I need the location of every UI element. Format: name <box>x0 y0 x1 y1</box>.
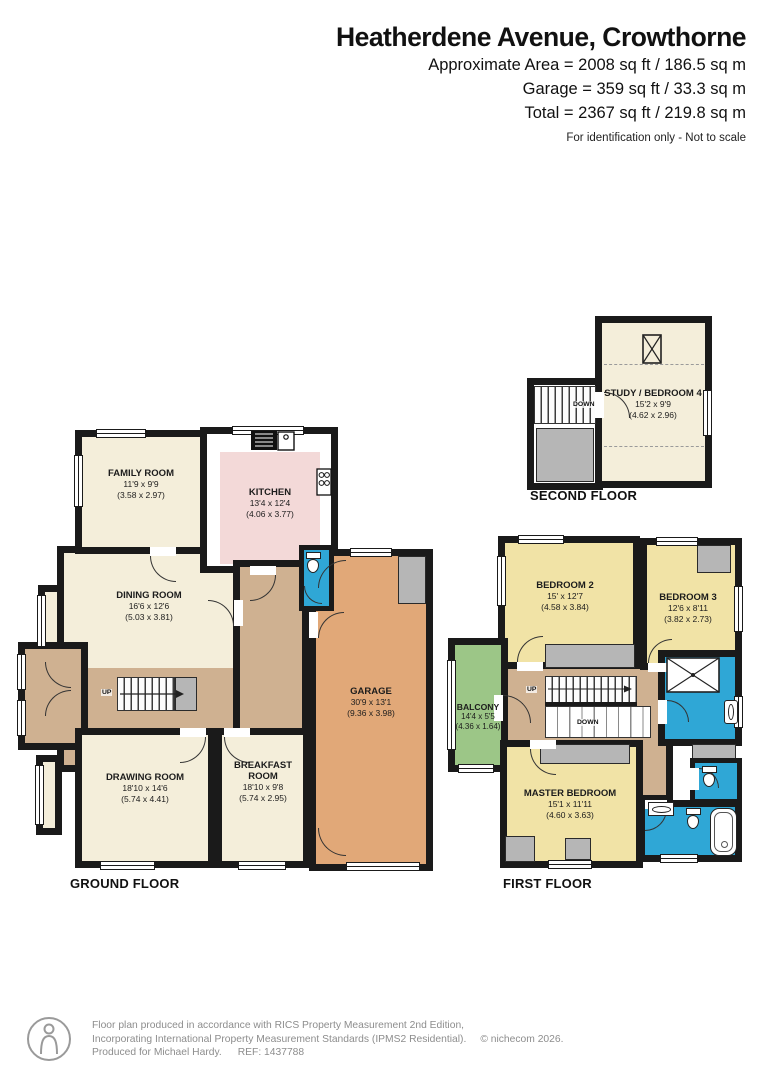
room-label-bedroom2: BEDROOM 2 15' x 12'7 (4.58 x 3.84) <box>512 580 618 612</box>
stairs-up-label: UP <box>526 686 537 693</box>
room-size-imperial: 15'2 x 9'9 <box>600 399 706 410</box>
window <box>37 595 46 647</box>
storage-area <box>536 428 594 482</box>
window <box>497 556 506 606</box>
stairs-up-label: UP <box>101 689 112 696</box>
room-size-metric: (4.60 x 3.63) <box>500 810 640 821</box>
footer-line3: Produced for Michael Hardy.REF: 1437788 <box>92 1046 563 1060</box>
window <box>660 854 698 863</box>
window <box>17 700 26 736</box>
room-size-metric: (4.58 x 3.84) <box>512 602 618 613</box>
door-opening <box>224 728 250 737</box>
room-name: BALCONY <box>449 702 507 712</box>
door-opening <box>309 612 318 638</box>
copyright-text: © nichecom 2026. <box>480 1034 563 1045</box>
skylight-icon <box>642 334 662 364</box>
door-opening <box>250 566 276 575</box>
door-opening <box>150 547 176 556</box>
room-size-imperial: 15' x 12'7 <box>512 591 618 602</box>
room-label-study: STUDY / BEDROOM 4 15'2 x 9'9 (4.62 x 2.9… <box>600 388 706 420</box>
floor-plan-page: Heatherdene Avenue, Crowthorne Approxima… <box>0 0 764 1080</box>
room-size-imperial: 14'4 x 5'5 <box>449 712 507 722</box>
ground-floor-label: GROUND FLOOR <box>70 876 179 891</box>
room-size-metric: (3.82 x 2.73) <box>635 614 741 625</box>
room-size-metric: (9.36 x 3.98) <box>318 708 424 719</box>
room-name: STUDY / BEDROOM 4 <box>600 388 706 399</box>
room-size-imperial: 11'9 x 9'9 <box>88 479 194 490</box>
reference-number: REF: 1437788 <box>238 1047 304 1058</box>
page-title: Heatherdene Avenue, Crowthorne <box>336 22 746 52</box>
first-floor-label: FIRST FLOOR <box>503 876 592 891</box>
stair-divider <box>545 702 637 706</box>
room-label-family: FAMILY ROOM 11'9 x 9'9 (3.58 x 2.97) <box>88 468 194 500</box>
window <box>548 860 592 869</box>
room-size-imperial: 18'10 x 14'6 <box>92 783 198 794</box>
wardrobe <box>545 644 635 668</box>
window <box>35 765 44 825</box>
window <box>238 861 286 870</box>
garage-area-line: Garage = 359 sq ft / 33.3 sq m <box>336 78 746 100</box>
window <box>350 548 392 557</box>
basin-icon <box>724 700 738 724</box>
first-floor-plan: UP DOWN <box>0 0 764 1080</box>
door-opening <box>517 662 543 671</box>
room-size-imperial: 18'10 x 9'8 <box>221 782 305 793</box>
room-size-imperial: 12'6 x 8'11 <box>635 603 741 614</box>
toilet-icon <box>702 766 717 788</box>
stairs-direction-arrow <box>548 684 634 694</box>
bay-pier <box>505 836 535 862</box>
disclaimer-text: For identification only - Not to scale <box>336 131 746 145</box>
room-size-imperial: 30'9 x 13'1 <box>318 697 424 708</box>
room-label-dining: DINING ROOM 16'6 x 12'6 (5.03 x 3.81) <box>96 590 202 622</box>
door-opening <box>530 740 556 749</box>
footer-line2: Incorporating International Property Mea… <box>92 1033 563 1047</box>
room-name: DINING ROOM <box>96 590 202 601</box>
bay-pier <box>565 838 591 860</box>
room-name: DRAWING ROOM <box>92 772 198 783</box>
second-floor-label: SECOND FLOOR <box>530 488 637 503</box>
door-opening <box>690 768 699 790</box>
window <box>458 764 494 773</box>
footer: Floor plan produced in accordance with R… <box>92 1019 563 1060</box>
room-size-imperial: 16'6 x 12'6 <box>96 601 202 612</box>
person-logo-icon <box>25 1015 73 1063</box>
toilet-icon <box>686 808 701 830</box>
footer-line1: Floor plan produced in accordance with R… <box>92 1019 563 1033</box>
room-name: GARAGE <box>318 686 424 697</box>
footer-standards-text: Incorporating International Property Mea… <box>92 1034 466 1045</box>
room-name: MASTER BEDROOM <box>500 788 640 799</box>
window <box>656 537 698 546</box>
stairs-direction-arrow <box>120 688 186 700</box>
kitchen-sink-icon <box>250 430 296 452</box>
room-label-master: MASTER BEDROOM 15'1 x 11'11 (4.60 x 3.63… <box>500 788 640 820</box>
room-size-metric: (3.58 x 2.97) <box>88 490 194 501</box>
bathtub-icon <box>710 808 737 856</box>
room-name: FAMILY ROOM <box>88 468 194 479</box>
produced-for-text: Produced for Michael Hardy. <box>92 1047 222 1058</box>
window <box>100 861 155 870</box>
room-name: BEDROOM 2 <box>512 580 618 591</box>
room-label-kitchen: KITCHEN 13'4 x 12'4 (4.06 x 3.77) <box>217 487 323 519</box>
approx-area-line: Approximate Area = 2008 sq ft / 186.5 sq… <box>336 54 746 76</box>
door-opening <box>180 728 206 737</box>
window <box>518 535 564 544</box>
header: Heatherdene Avenue, Crowthorne Approxima… <box>336 22 746 145</box>
garage-door <box>346 862 420 871</box>
window <box>96 429 146 438</box>
room-size-imperial: 13'4 x 12'4 <box>217 498 323 509</box>
door-opening <box>658 700 667 724</box>
room-size-metric: (5.74 x 4.41) <box>92 794 198 805</box>
room-label-garage: GARAGE 30'9 x 13'1 (9.36 x 3.98) <box>318 686 424 718</box>
room-label-breakfast: BREAKFAST ROOM 18'10 x 9'8 (5.74 x 2.95) <box>221 760 305 803</box>
room-size-metric: (4.06 x 3.77) <box>217 509 323 520</box>
toilet-icon <box>306 552 321 574</box>
shower-icon <box>666 657 720 693</box>
stairs-down-label: DOWN <box>572 401 596 408</box>
room-size-metric: (5.03 x 3.81) <box>96 612 202 623</box>
reduced-headroom-line <box>604 364 704 365</box>
window <box>74 455 83 507</box>
basin-icon <box>648 802 674 816</box>
room-name: BREAKFAST ROOM <box>221 760 305 782</box>
room-name: KITCHEN <box>217 487 323 498</box>
room-size-metric: (4.36 x 1.64) <box>449 722 507 732</box>
room-label-bedroom3: BEDROOM 3 12'6 x 8'11 (3.82 x 2.73) <box>635 592 741 624</box>
room-size-metric: (5.74 x 2.95) <box>221 793 305 804</box>
room-size-metric: (4.62 x 2.96) <box>600 410 706 421</box>
room-size-imperial: 15'1 x 11'11 <box>500 799 640 810</box>
room-label-balcony: BALCONY 14'4 x 5'5 (4.36 x 1.64) <box>449 702 507 731</box>
stairs-down-label: DOWN <box>576 719 600 726</box>
room-label-drawing: DRAWING ROOM 18'10 x 14'6 (5.74 x 4.41) <box>92 772 198 804</box>
door-opening <box>234 600 243 626</box>
reduced-headroom-line <box>604 446 704 447</box>
window <box>17 654 26 690</box>
total-area-line: Total = 2367 sq ft / 219.8 sq m <box>336 102 746 124</box>
wardrobe <box>697 545 731 573</box>
room-name: BEDROOM 3 <box>635 592 741 603</box>
